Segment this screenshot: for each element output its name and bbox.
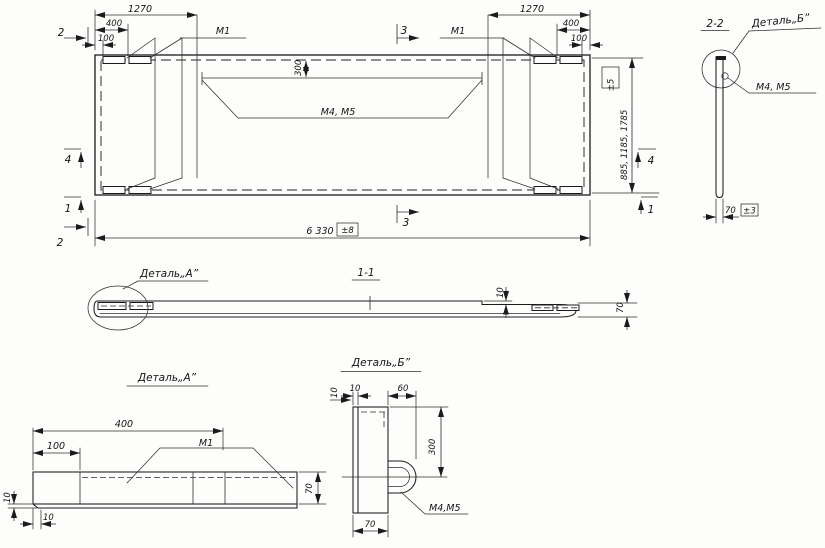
dim-10-detail-b: 10	[350, 384, 361, 394]
dim-heights: 885, 1185, 1785 ±5	[592, 58, 659, 193]
drawing-sheet: М1 М1 М4, М5 300 1270 400	[0, 0, 825, 548]
tol-3: ±3	[743, 207, 756, 217]
rib-right: М1	[440, 15, 558, 189]
dim-1270-right: 1270	[520, 4, 544, 15]
dim-1270-left: 1270	[128, 4, 152, 15]
marker-4-left: 4	[65, 154, 72, 166]
marker-2-bottom: 2	[57, 237, 64, 249]
detail-b-title: Деталь„Б”	[351, 357, 411, 369]
section-1-1-title: 1-1	[357, 267, 374, 279]
dim-400-detail-a: 400	[115, 419, 133, 430]
dim-10-detail-a: 10	[43, 513, 54, 523]
dim-step-10: 10	[496, 287, 506, 298]
detail-a-title: Деталь„А”	[137, 372, 197, 384]
marker-3-top: 3	[401, 25, 408, 37]
panel-section-profile	[94, 301, 576, 317]
dim-300: 300	[294, 60, 304, 76]
marker-4-right: 4	[648, 155, 655, 167]
anchor-tabs	[103, 57, 582, 194]
detail-b: Деталь„Б” 10 60 300 70 10 М4,М5	[330, 357, 468, 537]
blueprint-svg: М1 М1 М4, М5 300 1270 400	[0, 0, 825, 548]
dim-10-side-detail-a: 10	[3, 492, 13, 503]
dim-100-right: 100	[571, 34, 587, 44]
panel-hidden-edge	[101, 60, 584, 190]
detail-a-body	[33, 472, 297, 504]
m1-label-right: М1	[451, 26, 465, 37]
panel-cross-section	[716, 57, 723, 198]
marker-1-left: 1	[65, 203, 72, 215]
dim-70-2-2: 70	[725, 206, 736, 216]
dim-400-left: 400	[106, 19, 122, 29]
dim-60-detail-b: 60	[398, 384, 409, 394]
m1-label-left: М1	[216, 26, 230, 37]
detail-b-callout: Деталь„Б”	[750, 12, 811, 30]
tol-8: ±8	[341, 226, 354, 236]
dim-6330: 6 330	[306, 226, 333, 237]
detail-a: Деталь„А” М1 400 100 70 10 10	[3, 372, 326, 529]
m4-m5-label-detail-b: М4,М5	[429, 503, 461, 514]
dims-top-right: 1270 400 100	[488, 4, 603, 56]
dim-885-1185-1785: 885, 1185, 1785	[620, 110, 630, 180]
marker-3-bottom: 3	[403, 217, 410, 229]
dim-400-right: 400	[563, 19, 579, 29]
rib-left: М1	[127, 15, 246, 189]
section-2-2-title: 2-2	[706, 18, 723, 30]
dim-70-detail-b: 70	[365, 520, 376, 530]
dim-length: 6 330 ±8	[95, 200, 590, 246]
dim-10-side-detail-b: 10	[330, 387, 340, 398]
main-view: М1 М1 М4, М5 300 1270 400	[57, 4, 659, 249]
section-2-2: 2-2 Деталь„Б” М4, М5 70 ±3	[701, 12, 821, 223]
dim-thickness-70: 70	[616, 302, 626, 313]
marker-2-top: 2	[58, 27, 65, 39]
section-1-1: 1-1 Деталь„А” 10 70	[88, 267, 637, 330]
dims-top-left: 1270 400 100	[82, 4, 197, 56]
tol-5: ±5	[607, 79, 617, 92]
dim-100-detail-a: 100	[47, 441, 65, 452]
m4-m5-label: М4, М5	[321, 107, 356, 118]
embed-plate-top	[716, 56, 726, 60]
m4-m5-weld: М4, М5 300	[202, 60, 482, 118]
detail-a-callout: Деталь„А”	[139, 268, 199, 280]
m1-label-detail-a: М1	[199, 438, 213, 449]
m4-m5-label-2-2: М4, М5	[756, 82, 791, 93]
dim-100-left: 100	[98, 34, 114, 44]
marker-1-right: 1	[648, 204, 655, 216]
dim-300-detail-b: 300	[428, 439, 438, 455]
dim-70-detail-a: 70	[305, 483, 315, 494]
panel-outline	[95, 55, 590, 195]
